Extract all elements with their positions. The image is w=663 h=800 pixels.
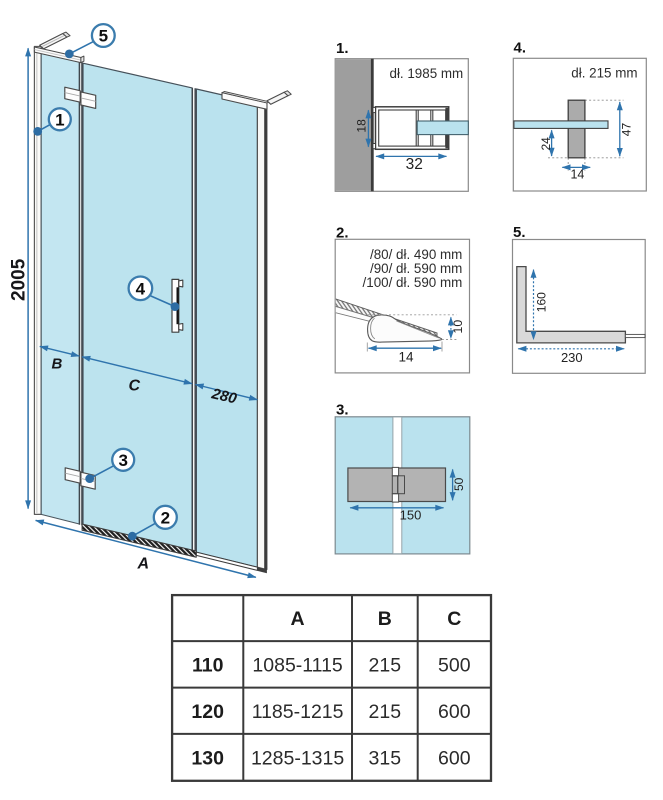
svg-text:2005: 2005 bbox=[9, 258, 30, 301]
svg-text:3: 3 bbox=[118, 451, 127, 470]
svg-text:/90/ dł. 590 mm: /90/ dł. 590 mm bbox=[370, 261, 462, 276]
svg-text:315: 315 bbox=[369, 747, 402, 769]
svg-text:110: 110 bbox=[192, 655, 224, 677]
svg-text:1185-1215: 1185-1215 bbox=[252, 701, 344, 723]
svg-text:5.: 5. bbox=[513, 224, 526, 241]
svg-text:C: C bbox=[129, 378, 141, 395]
svg-text:120: 120 bbox=[191, 701, 224, 723]
svg-text:dł. 215 mm: dł. 215 mm bbox=[571, 66, 637, 81]
svg-text:150: 150 bbox=[400, 508, 422, 523]
svg-text:4: 4 bbox=[136, 279, 146, 298]
svg-text:A: A bbox=[137, 556, 150, 573]
svg-text:1085-1115: 1085-1115 bbox=[252, 655, 343, 677]
svg-text:500: 500 bbox=[438, 655, 471, 677]
svg-text:230: 230 bbox=[561, 350, 583, 365]
svg-text:1: 1 bbox=[55, 110, 64, 129]
svg-text:2: 2 bbox=[161, 508, 170, 527]
svg-text:C: C bbox=[447, 608, 461, 630]
svg-text:600: 600 bbox=[438, 747, 471, 769]
svg-text:1.: 1. bbox=[336, 40, 349, 57]
svg-text:10: 10 bbox=[451, 320, 465, 334]
svg-text:14: 14 bbox=[570, 167, 584, 181]
svg-text:B: B bbox=[378, 608, 392, 630]
svg-text:A: A bbox=[291, 608, 305, 630]
svg-text:160: 160 bbox=[535, 292, 549, 312]
svg-text:50: 50 bbox=[452, 477, 466, 491]
svg-text:32: 32 bbox=[406, 156, 423, 173]
svg-text:24: 24 bbox=[539, 137, 553, 151]
svg-text:14: 14 bbox=[398, 350, 414, 365]
svg-text:215: 215 bbox=[369, 655, 402, 677]
svg-text:dł. 1985 mm: dł. 1985 mm bbox=[390, 66, 464, 81]
svg-text:47: 47 bbox=[620, 123, 634, 137]
svg-text:215: 215 bbox=[369, 701, 402, 723]
svg-text:18: 18 bbox=[354, 119, 368, 133]
svg-text:130: 130 bbox=[191, 747, 224, 769]
svg-text:/100/ dł. 590 mm: /100/ dł. 590 mm bbox=[363, 275, 463, 290]
svg-text:1285-1315: 1285-1315 bbox=[251, 747, 344, 769]
svg-text:B: B bbox=[52, 356, 63, 373]
svg-text:3.: 3. bbox=[336, 402, 349, 419]
svg-text:/80/ dł. 490 mm: /80/ dł. 490 mm bbox=[370, 247, 462, 262]
svg-text:600: 600 bbox=[438, 701, 471, 723]
svg-text:4.: 4. bbox=[514, 40, 527, 57]
svg-text:5: 5 bbox=[99, 27, 108, 46]
